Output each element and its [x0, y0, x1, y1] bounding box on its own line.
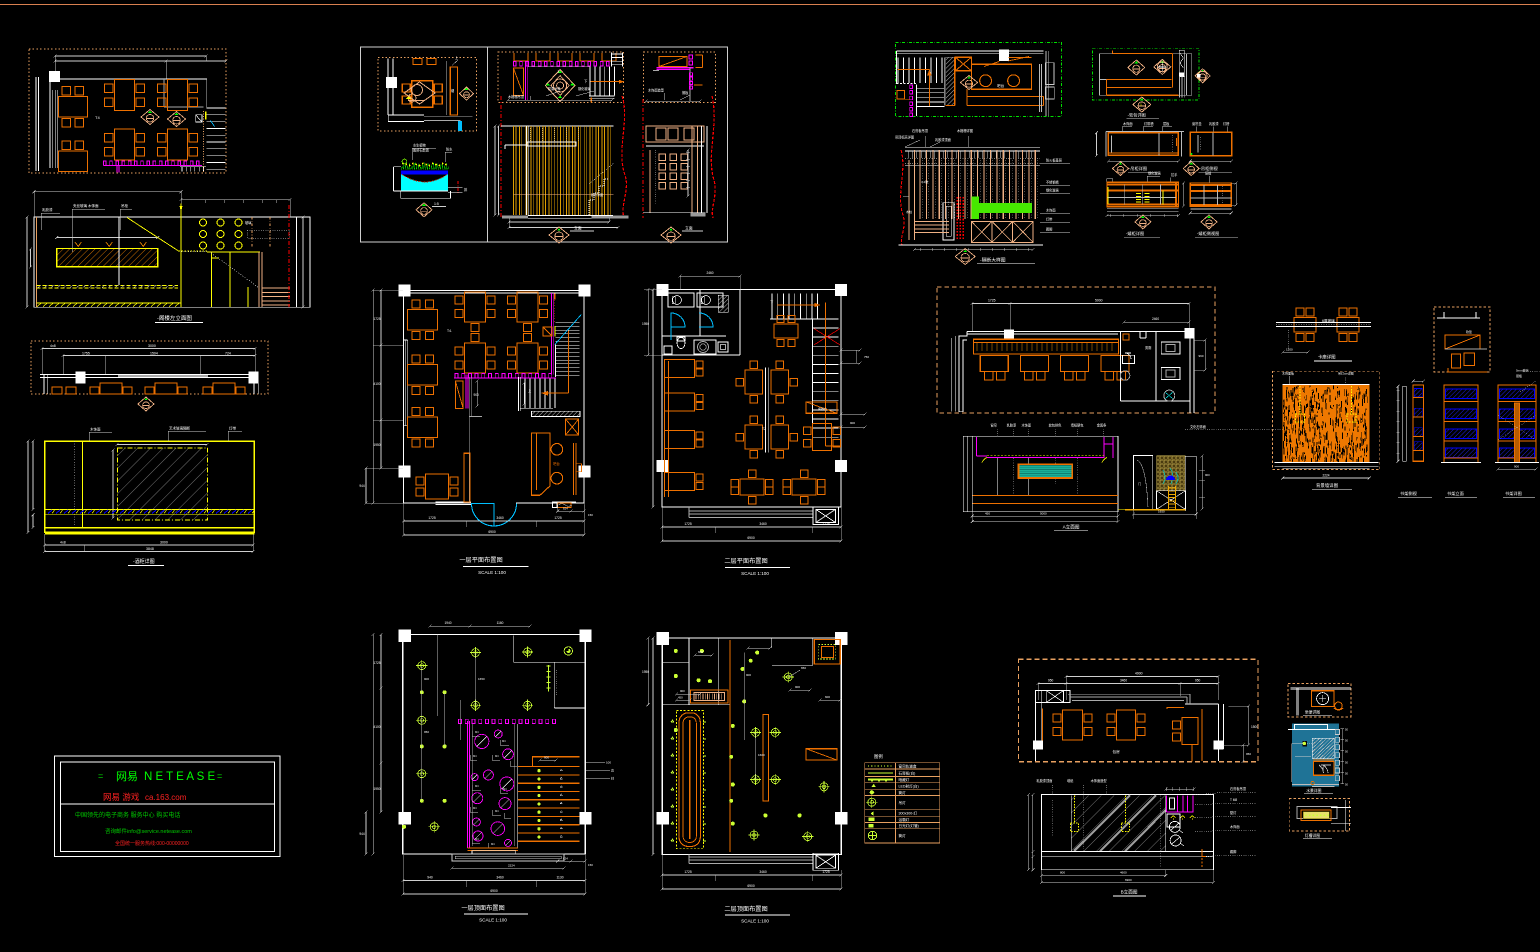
svg-text:防腐木条: 防腐木条 [548, 86, 562, 91]
svg-text:拉手: 拉手 [1171, 172, 1178, 177]
svg-text:乳胶漆: 乳胶漆 [1007, 423, 1017, 428]
svg-text:4x8: 4x8 [50, 344, 56, 348]
svg-text:窗帘盒: 窗帘盒 [1192, 121, 1202, 126]
svg-text:踢脚: 踢脚 [1046, 227, 1052, 232]
svg-text:备餐台: 备餐台 [818, 406, 827, 411]
svg-text:T M8: T M8 [1230, 798, 1237, 802]
svg-text:-软包详图: -软包详图 [1128, 112, 1146, 119]
svg-text:木饰面造型: 木饰面造型 [648, 88, 665, 93]
svg-text:木饰面: 木饰面 [1230, 824, 1240, 829]
svg-text:SCALE 1:100: SCALE 1:100 [741, 919, 769, 924]
svg-text:窗帘: 窗帘 [991, 423, 997, 428]
svg-text:木格栅详图: 木格栅详图 [957, 128, 973, 133]
svg-text:4900: 4900 [1135, 672, 1143, 676]
svg-text:-隔断大样图: -隔断大样图 [980, 257, 1006, 264]
svg-text:5000: 5000 [1040, 512, 1047, 516]
svg-text:1160: 1160 [497, 621, 504, 625]
svg-text:1725: 1725 [684, 522, 692, 526]
svg-text:1940: 1940 [444, 621, 451, 625]
svg-text:门: 门 [1138, 481, 1141, 486]
svg-text:1950: 1950 [373, 443, 380, 447]
svg-text:书架详图: 书架详图 [1505, 490, 1522, 497]
svg-text:全国统一服务热线:000-00000000: 全国统一服务热线:000-00000000 [115, 840, 189, 847]
svg-text:防水: 防水 [446, 147, 453, 152]
svg-text:M4: M4 [475, 837, 479, 841]
svg-text:烟: 烟 [451, 88, 454, 93]
svg-text:600: 600 [544, 756, 549, 760]
svg-text:1: 1 [1140, 103, 1142, 107]
svg-text:824: 824 [563, 507, 568, 511]
svg-text:筒灯: 筒灯 [899, 790, 907, 795]
svg-text:窗帘轨道盒: 窗帘轨道盒 [899, 763, 917, 768]
svg-text:SCALE 1:100: SCALE 1:100 [741, 571, 769, 576]
svg-text:石膏板吊顶: 石膏板吊顶 [1230, 786, 1247, 791]
svg-text:层板: 层板 [1163, 121, 1170, 126]
svg-text:-吊柜详图: -吊柜详图 [1129, 165, 1147, 172]
svg-text:900: 900 [424, 677, 429, 681]
svg-text:金属条: 金属条 [1097, 423, 1107, 428]
svg-text:玻璃: 玻璃 [245, 220, 252, 225]
svg-text:高: 高 [611, 768, 614, 773]
svg-text:5mm玻璃: 5mm玻璃 [1516, 368, 1529, 373]
svg-text:1725: 1725 [684, 870, 692, 874]
svg-text:吧台: 吧台 [997, 83, 1005, 88]
svg-text:M4: M4 [475, 784, 479, 788]
svg-text:筒灯: 筒灯 [899, 833, 907, 838]
svg-text:木饰面: 木饰面 [1046, 208, 1056, 213]
svg-text:木饰面: 木饰面 [1022, 423, 1032, 428]
svg-text:1725: 1725 [822, 522, 830, 526]
svg-text:坐便详图: 坐便详图 [1305, 710, 1320, 715]
svg-text:1:5: 1:5 [434, 202, 439, 206]
svg-text:踏步详图: 踏步详图 [591, 192, 603, 197]
svg-text:3000: 3000 [148, 344, 156, 348]
svg-text:3460: 3460 [759, 522, 767, 526]
svg-text:3460: 3460 [496, 876, 504, 880]
svg-text:鹅卵石散置: 鹅卵石散置 [413, 148, 429, 153]
svg-text:网易 游戏: 网易 游戏 [103, 792, 140, 802]
svg-text:木饰面: 木饰面 [1123, 121, 1133, 126]
svg-text:2460: 2460 [1152, 317, 1159, 321]
svg-text:944: 944 [359, 484, 365, 488]
svg-text:1504: 1504 [150, 352, 158, 356]
svg-text:900: 900 [1205, 473, 1210, 477]
svg-text:背景墙详图: 背景墙详图 [1316, 482, 1339, 489]
svg-text:SCALE 1:100: SCALE 1:100 [479, 918, 507, 923]
svg-text:灯带槽: 灯带槽 [1144, 121, 1154, 126]
svg-text:3460: 3460 [1120, 679, 1127, 683]
svg-text:-酒柜详图: -酒柜详图 [133, 558, 155, 565]
svg-text:咨询邮件info@service.netease.com: 咨询邮件info@service.netease.com [105, 827, 192, 835]
svg-text:300x300-灯: 300x300-灯 [899, 811, 918, 816]
svg-text:图例: 图例 [874, 753, 883, 760]
svg-text:石膏板吊顶: 石膏板吊顶 [912, 128, 929, 133]
svg-text:吊灯см详图: 吊灯см详图 [1338, 371, 1354, 376]
svg-text:990: 990 [1198, 354, 1203, 358]
svg-text:灯槽详图: 灯槽详图 [1305, 833, 1320, 838]
svg-text:5000: 5000 [1095, 299, 1103, 303]
svg-text:中国领先的电子商务 服务中心 购买电话: 中国领先的电子商务 服务中心 购买电话 [75, 811, 180, 819]
svg-text:艺术玻璃隔断: 艺术玻璃隔断 [169, 426, 190, 431]
svg-text:B立面图: B立面图 [1121, 889, 1138, 896]
svg-text:防火板基层: 防火板基层 [1046, 158, 1062, 163]
svg-text:940: 940 [427, 876, 433, 880]
svg-text:包房: 包房 [1113, 749, 1121, 754]
svg-text:3460: 3460 [496, 516, 504, 520]
svg-text:1725: 1725 [554, 516, 562, 520]
svg-text:暗藏灯: 暗藏灯 [899, 777, 910, 782]
svg-text:4100: 4100 [373, 725, 380, 729]
svg-text:150: 150 [588, 863, 593, 867]
svg-text:钢化玻璃: 钢化玻璃 [1148, 171, 1162, 176]
svg-text:900: 900 [474, 393, 480, 397]
svg-text:木柱: 木柱 [906, 209, 912, 214]
svg-text:LED射灯(白): LED射灯(白) [899, 784, 919, 789]
svg-text:水景详图: 水景详图 [1306, 788, 1321, 793]
svg-text:乳胶漆: 乳胶漆 [1209, 121, 1219, 126]
svg-text:不锈钢槽: 不锈钢槽 [1046, 180, 1060, 185]
svg-text:钢化玻璃: 钢化玻璃 [1046, 188, 1060, 193]
svg-text:木格栅吊顶: 木格栅吊顶 [508, 94, 525, 99]
svg-text:450: 450 [678, 695, 683, 699]
svg-text:6900: 6900 [747, 536, 755, 540]
svg-text:1755: 1755 [82, 352, 90, 356]
svg-text:600: 600 [698, 650, 703, 654]
svg-text:900: 900 [1514, 465, 1519, 469]
svg-text:一层平面布置图: 一层平面布置图 [459, 556, 502, 564]
svg-text:1725: 1725 [373, 317, 380, 321]
svg-text:2460: 2460 [706, 271, 713, 275]
svg-text:-矮柜侧视图: -矮柜侧视图 [1197, 230, 1219, 237]
svg-text:吧台: 吧台 [553, 461, 560, 466]
svg-text:950: 950 [1246, 752, 1251, 756]
svg-text:724: 724 [225, 352, 231, 356]
svg-text:立面: 立面 [574, 226, 582, 231]
svg-text:T2: T2 [762, 427, 766, 431]
svg-text:4100: 4100 [373, 382, 380, 386]
svg-text:944: 944 [359, 832, 365, 836]
svg-text:M4: M4 [495, 754, 499, 758]
svg-text:壁灯: 壁灯 [1230, 810, 1237, 815]
svg-text:踢脚: 踢脚 [1230, 849, 1236, 854]
svg-text:材: 材 [611, 776, 614, 781]
svg-text:1200: 1200 [1286, 348, 1293, 352]
svg-text:650: 650 [801, 666, 806, 670]
svg-text:900: 900 [680, 689, 685, 693]
svg-text:900: 900 [795, 685, 800, 689]
svg-text:900: 900 [850, 421, 855, 425]
svg-text:1725: 1725 [428, 516, 436, 520]
svg-text:夹丝玻璃 木饰面: 夹丝玻璃 木饰面 [73, 203, 99, 208]
svg-text:软垫: 软垫 [1466, 329, 1472, 334]
svg-text:墙纸: 墙纸 [1067, 778, 1074, 783]
svg-text:6900: 6900 [488, 530, 496, 534]
svg-text:1650: 1650 [478, 677, 485, 681]
svg-text:1: 1 [558, 70, 560, 74]
svg-text:吊灯: 吊灯 [899, 800, 907, 805]
svg-text:1725: 1725 [822, 870, 830, 874]
svg-text:M4: M4 [495, 809, 499, 813]
svg-text:450: 450 [985, 512, 990, 516]
svg-text:软包拼色: 软包拼色 [1049, 423, 1063, 428]
svg-text:1950: 1950 [642, 322, 649, 326]
svg-text:1725: 1725 [988, 299, 996, 303]
svg-text:墙纸硬包: 墙纸硬包 [1071, 423, 1085, 428]
svg-text:N E T E A S E: N E T E A S E [144, 771, 215, 783]
svg-text:M4: M4 [473, 754, 477, 758]
svg-text:-矮柜详图: -矮柜详图 [1126, 230, 1144, 237]
svg-text:T4.: T4. [447, 329, 452, 333]
svg-text:文化石饰面: 文化石饰面 [1190, 424, 1206, 429]
svg-text:950: 950 [1195, 679, 1201, 683]
svg-text:灯带: 灯带 [229, 426, 236, 431]
svg-text:二层平面布置图: 二层平面布置图 [724, 557, 767, 565]
svg-text:1600: 1600 [758, 753, 765, 757]
svg-text:1650: 1650 [1158, 510, 1165, 514]
svg-text:6900: 6900 [1125, 878, 1132, 882]
svg-text:钢化玻璃: 钢化玻璃 [578, 86, 592, 91]
svg-text:M4: M4 [502, 739, 506, 743]
svg-text:1500: 1500 [1251, 725, 1258, 729]
svg-text:800: 800 [1060, 871, 1065, 875]
svg-text:6900: 6900 [747, 884, 755, 888]
svg-text:4.2玻: 4.2玻 [921, 179, 928, 184]
svg-text:6900: 6900 [490, 889, 498, 893]
svg-text:乳胶漆顶面: 乳胶漆顶面 [935, 137, 951, 142]
svg-text:1130: 1130 [556, 876, 563, 880]
svg-text:乳胶漆: 乳胶漆 [42, 207, 53, 212]
svg-text:一层顶面布置图: 一层顶面布置图 [461, 904, 504, 912]
svg-text:4600: 4600 [1120, 871, 1127, 875]
svg-text:灯槽: 灯槽 [1223, 121, 1230, 126]
svg-text:A立面图: A立面图 [1063, 524, 1080, 531]
svg-text:6厚玻璃: 6厚玻璃 [1322, 318, 1335, 323]
svg-text:1950: 1950 [373, 787, 380, 791]
svg-text:ca.163.com: ca.163.com [145, 793, 187, 802]
svg-text:T4: T4 [95, 115, 100, 120]
svg-text:木饰面板: 木饰面板 [1282, 371, 1294, 376]
svg-text:灯带: 灯带 [1046, 217, 1053, 222]
svg-text:3000: 3000 [160, 541, 168, 545]
svg-text:750: 750 [864, 355, 869, 359]
svg-text:水生植物: 水生植物 [413, 143, 427, 148]
svg-text:M4: M4 [475, 730, 479, 734]
svg-text:100: 100 [606, 761, 611, 765]
svg-text:-阁楼左立面图: -阁楼左立面图 [157, 314, 192, 322]
svg-text:950: 950 [424, 730, 429, 734]
svg-text:600: 600 [825, 695, 830, 699]
svg-text:2224: 2224 [508, 864, 515, 868]
svg-text:层板: 层板 [1516, 373, 1522, 378]
svg-text:吊柜: 吊柜 [121, 203, 128, 208]
svg-text:M4: M4 [473, 806, 477, 810]
svg-text:4x8: 4x8 [60, 541, 66, 545]
svg-text:=: = [217, 771, 222, 781]
svg-text:2224: 2224 [1322, 474, 1329, 478]
svg-text:书架立面: 书架立面 [1447, 490, 1464, 497]
svg-text:3460: 3460 [759, 870, 767, 874]
svg-text:网易: 网易 [116, 770, 138, 783]
svg-text:950: 950 [1048, 679, 1054, 683]
svg-text:搁板: 搁板 [682, 90, 689, 95]
svg-text:150: 150 [588, 513, 593, 517]
svg-text:吊顶标高详图: 吊顶标高详图 [895, 135, 914, 140]
svg-text:木饰面: 木饰面 [90, 427, 101, 432]
svg-text:书架侧视: 书架侧视 [1400, 490, 1418, 497]
svg-text:卡座详图: 卡座详图 [1318, 354, 1336, 361]
svg-text:SCALE 1:100: SCALE 1:100 [478, 570, 506, 575]
svg-text:立面: 立面 [685, 226, 693, 231]
svg-text:木饰面造型: 木饰面造型 [1091, 778, 1108, 783]
svg-text:900: 900 [746, 673, 751, 677]
svg-text:M4: M4 [491, 842, 495, 846]
svg-text:日光灯(灯管): 日光灯(灯管) [899, 823, 919, 828]
svg-text:乳胶漆顶面: 乳胶漆顶面 [1036, 778, 1052, 783]
svg-text:1725: 1725 [373, 661, 380, 665]
svg-text:1950: 1950 [642, 670, 649, 674]
svg-text:浴霸灯: 浴霸灯 [899, 817, 910, 822]
svg-text:二层顶面布置图: 二层顶面布置图 [724, 905, 767, 913]
svg-text:3848: 3848 [146, 547, 154, 551]
svg-text:层板: 层板 [1205, 171, 1212, 176]
svg-text:M4: M4 [503, 787, 507, 791]
svg-text:男厕: 男厕 [1145, 345, 1151, 350]
svg-text:石膏板(白): 石膏板(白) [899, 771, 916, 776]
svg-text:=: = [98, 771, 103, 781]
